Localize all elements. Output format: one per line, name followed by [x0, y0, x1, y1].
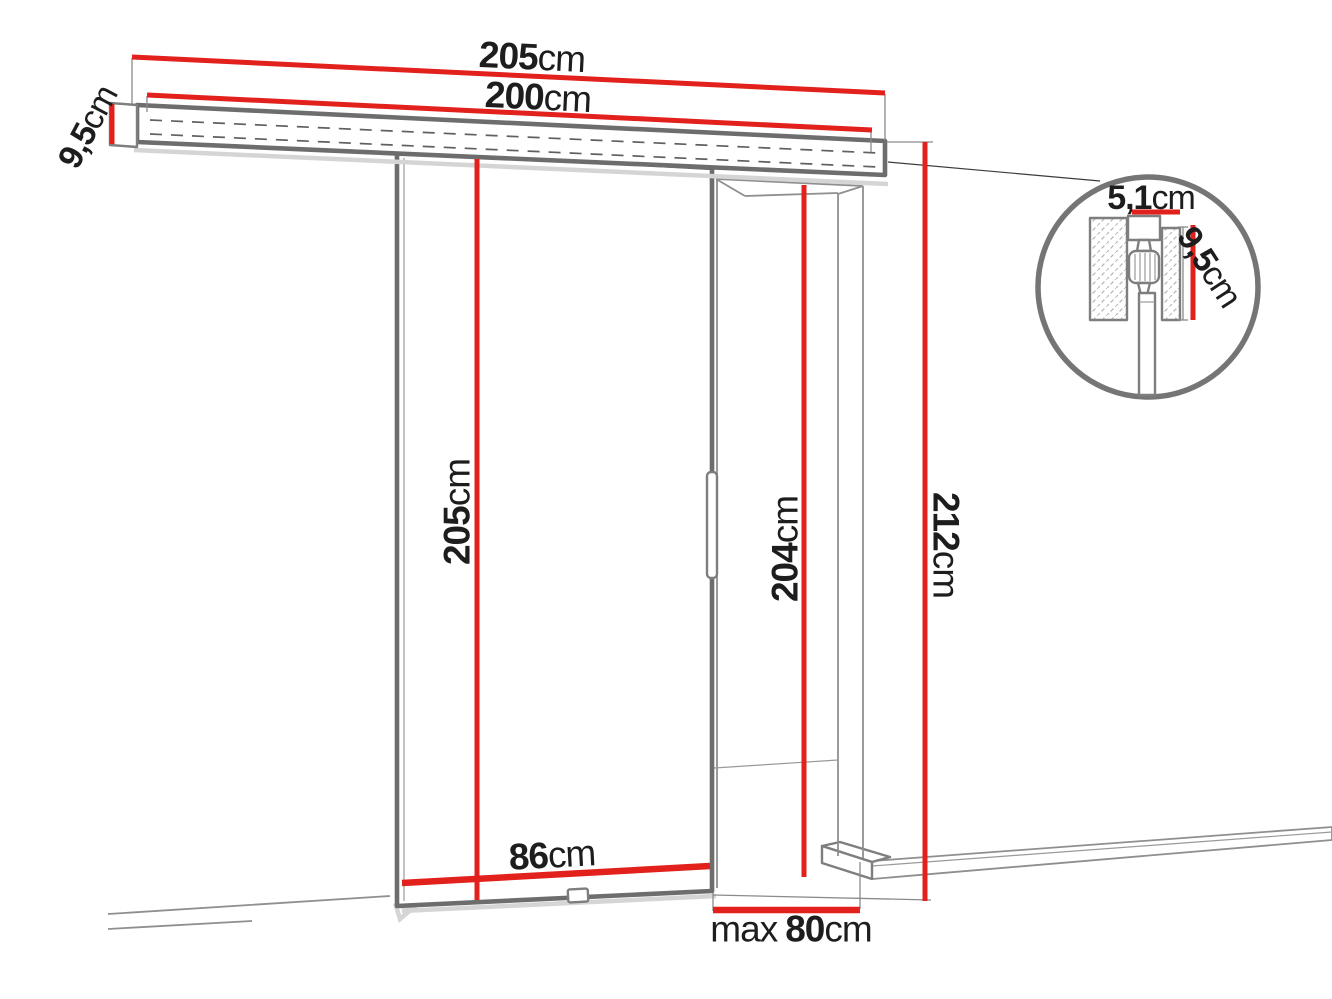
dim-value: 204 — [765, 543, 806, 602]
dim-label-track-total-width: 205cm — [478, 36, 586, 78]
dim-unit: cm — [543, 77, 592, 120]
dim-unit: cm — [437, 459, 478, 506]
dim-label-detail-width: 5,1cm — [1107, 181, 1195, 215]
skirting-board — [872, 827, 1332, 879]
wall-block-left — [1090, 218, 1127, 320]
dim-unit: cm — [765, 496, 806, 543]
diagram-canvas — [0, 0, 1332, 999]
floor-lines — [108, 896, 390, 929]
dim-unit: cm — [926, 551, 967, 598]
dim-value: 205 — [478, 34, 539, 78]
dim-label-opening-height: 204cm — [767, 496, 804, 602]
dim-unit: cm — [537, 37, 586, 80]
dim-label-max-opening-width: max80cm — [710, 911, 871, 948]
dim-label-overall-height: 212cm — [928, 492, 965, 598]
dim-value: 205 — [437, 506, 478, 565]
dim-label-door-height: 205cm — [439, 459, 476, 565]
dim-value: 80 — [785, 909, 824, 950]
dim-label-track-length: 200cm — [484, 76, 592, 118]
dim-unit: cm — [1151, 179, 1194, 217]
door-edge-profile — [1139, 293, 1155, 395]
sliding-door-dimension-diagram: 205cm 200cm 9,5cm 205cm 204cm 212cm 86cm… — [0, 0, 1332, 999]
dim-value: 212 — [926, 492, 967, 551]
interior-floor-line — [714, 760, 838, 768]
dim-prefix: max — [710, 909, 777, 950]
door-handle — [707, 472, 717, 578]
dim-unit: cm — [824, 909, 871, 950]
dim-value: 86 — [508, 835, 549, 878]
dim-value: 200 — [484, 74, 545, 118]
dim-value: 5,1 — [1107, 179, 1151, 217]
dim-label-door-width: 86cm — [508, 834, 596, 875]
dim-unit: cm — [547, 832, 596, 875]
floor-guide — [568, 888, 589, 902]
detail-leader-line — [888, 162, 1100, 181]
